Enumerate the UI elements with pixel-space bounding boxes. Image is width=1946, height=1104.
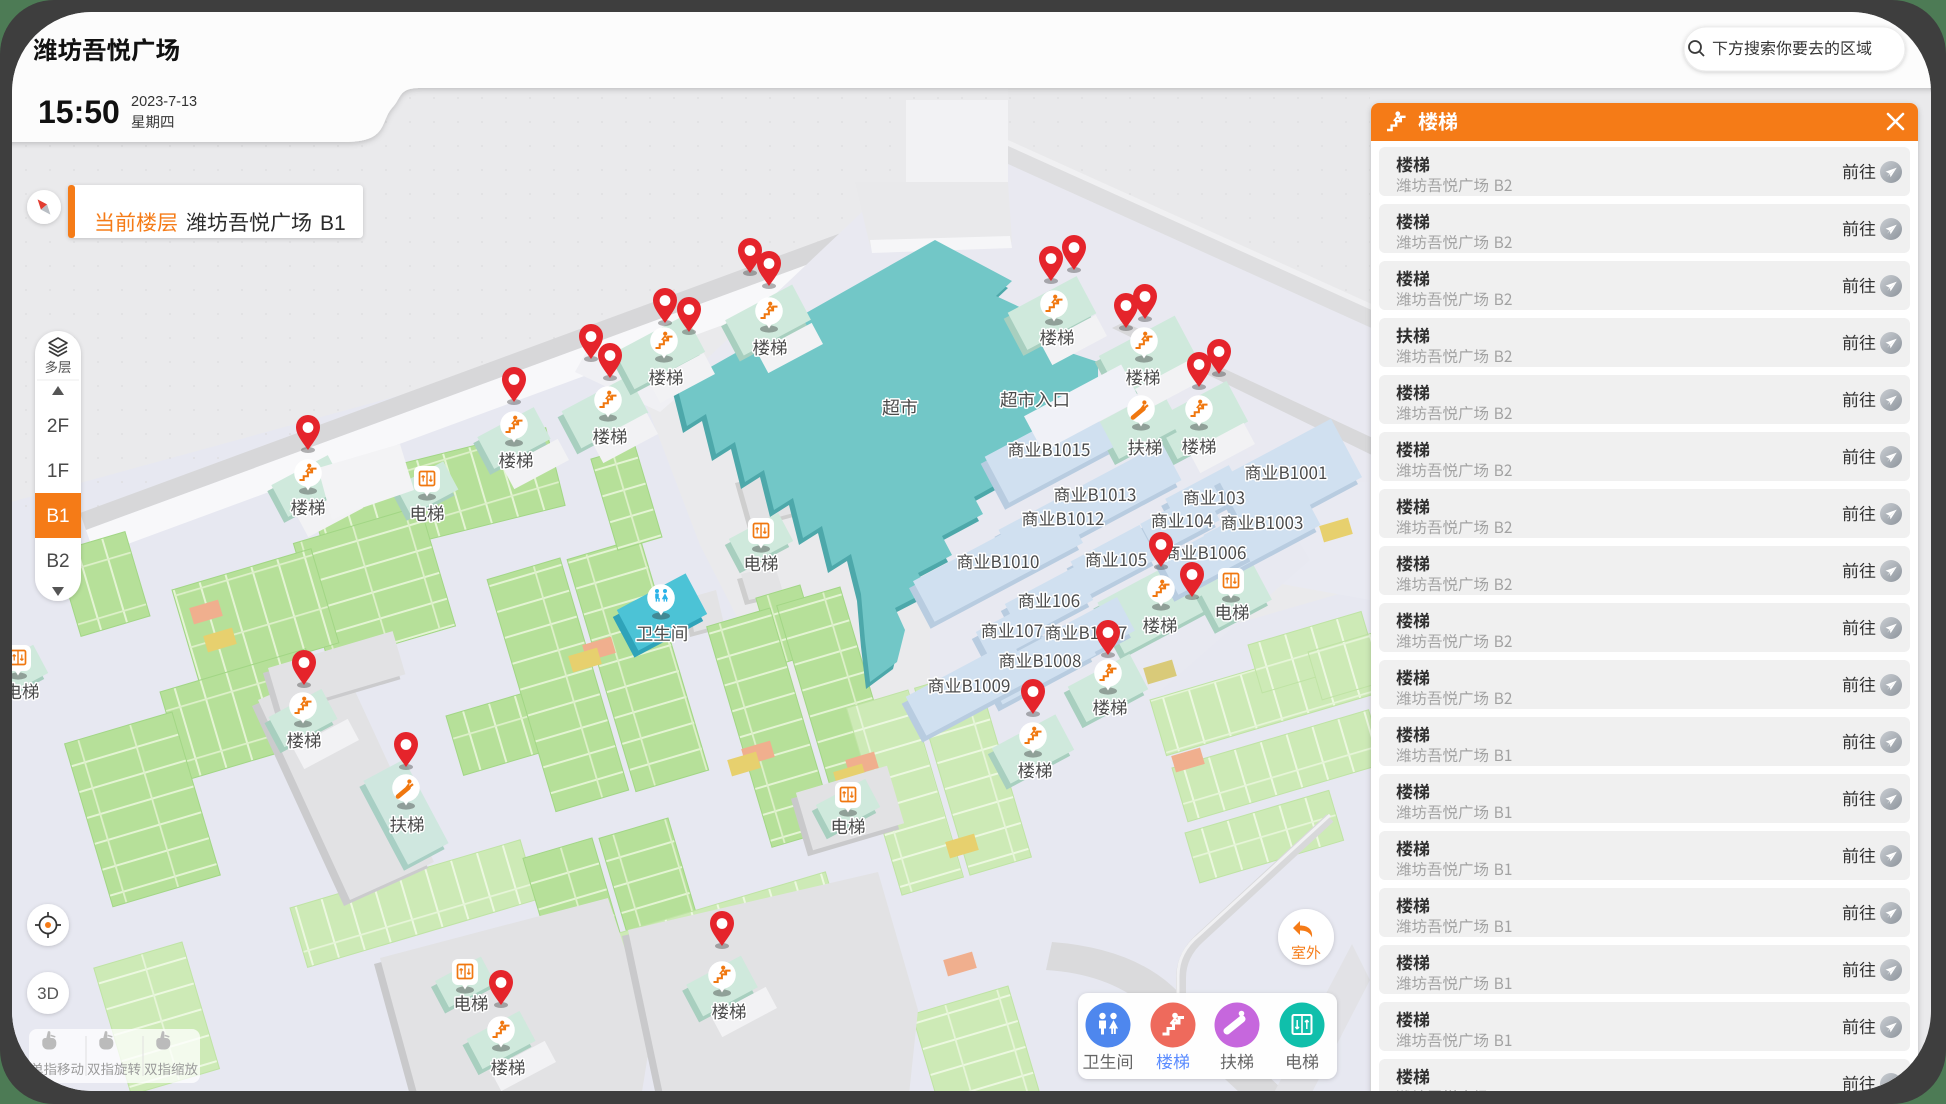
svg-text:2F: 2F (47, 416, 69, 437)
svg-text:B1: B1 (320, 212, 346, 235)
svg-text:B1: B1 (46, 506, 69, 527)
svg-text:B2: B2 (46, 551, 69, 572)
svg-text:1F: 1F (47, 461, 69, 482)
svg-text:15:50: 15:50 (38, 94, 120, 130)
svg-text:3D: 3D (37, 984, 59, 1003)
svg-text:2023-7-13: 2023-7-13 (131, 94, 197, 110)
